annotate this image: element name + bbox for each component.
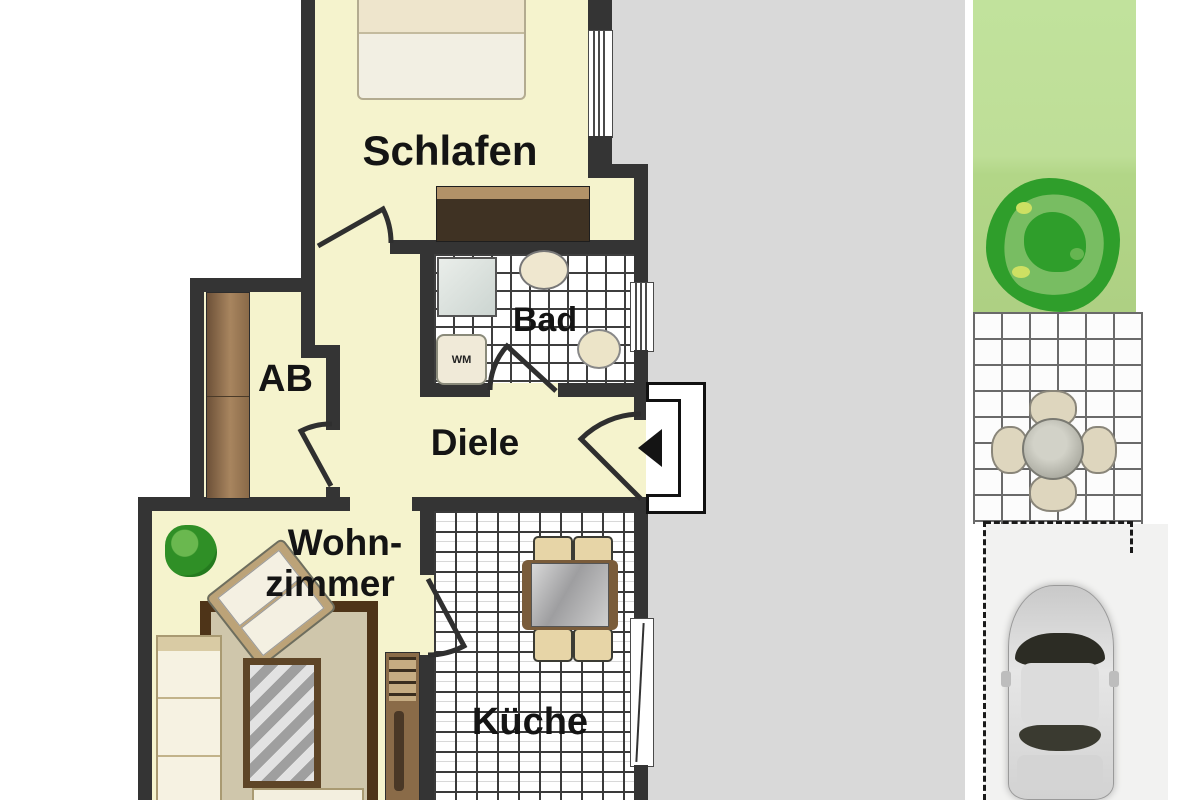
entrance-door-swing <box>581 414 641 499</box>
door-swing-overlay <box>0 0 1200 800</box>
kitchen-door-swing <box>428 579 464 655</box>
bedroom-label: Schlafen <box>340 130 560 172</box>
kitchen-label: Küche <box>450 703 610 741</box>
bathroom-label: Bad <box>495 303 595 337</box>
floorplan-canvas: WM Schlafen Bad AB Diel <box>0 0 1200 800</box>
storage-label: AB <box>248 360 323 398</box>
living-room-label-line2: zimmer <box>240 565 420 602</box>
hallway-label: Diele <box>420 424 530 461</box>
bedroom-door-swing <box>318 209 391 246</box>
storage-door-swing <box>301 424 332 486</box>
bathroom-door-swing <box>490 346 556 391</box>
living-room-label-line1: Wohn- <box>270 524 420 561</box>
